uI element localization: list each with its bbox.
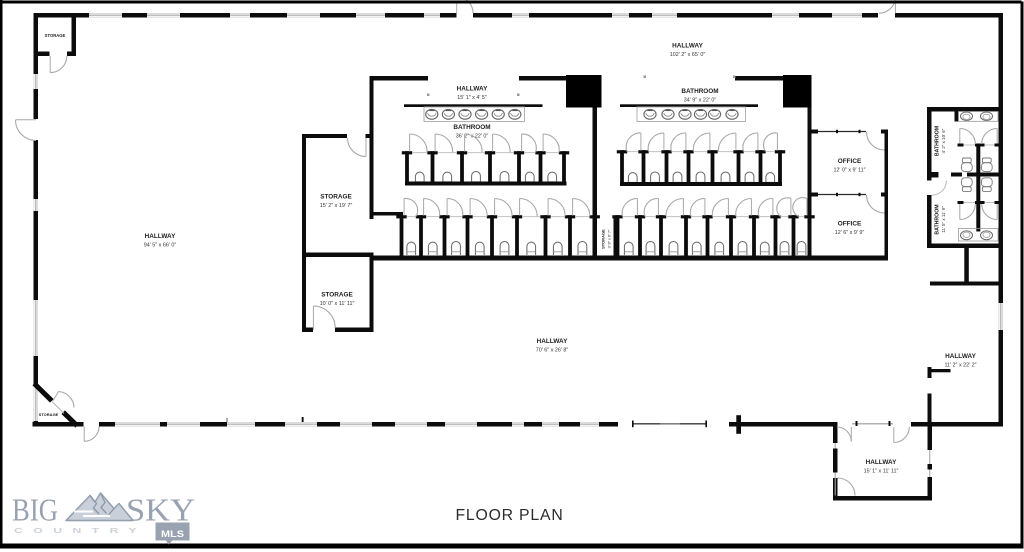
svg-text:94′ 5″ x 66′ 0″: 94′ 5″ x 66′ 0″: [144, 243, 177, 249]
svg-text:36′ 2″ x 22′ 0″: 36′ 2″ x 22′ 0″: [456, 134, 489, 140]
svg-text:STORAGE: STORAGE: [321, 292, 353, 299]
svg-text:10′ 0″ x 11′ 11″: 10′ 0″ x 11′ 11″: [320, 301, 355, 307]
svg-text:HALLWAY: HALLWAY: [866, 459, 897, 466]
svg-text:15′ 1″ x 11′ 11″: 15′ 1″ x 11′ 11″: [864, 469, 899, 475]
svg-text:11′ 2″ x 22′ 2″: 11′ 2″ x 22′ 2″: [944, 363, 976, 369]
svg-text:3′ 8″ x 6′ 7″: 3′ 8″ x 6′ 7″: [608, 229, 612, 248]
svg-text:HALLWAY: HALLWAY: [537, 338, 568, 345]
svg-text:BATHROOM: BATHROOM: [935, 204, 941, 234]
svg-text:HALLWAY: HALLWAY: [145, 233, 176, 240]
svg-text:FLOOR PLAN: FLOOR PLAN: [455, 507, 563, 524]
svg-text:BATHROOM: BATHROOM: [453, 124, 490, 131]
svg-text:HALLWAY: HALLWAY: [457, 86, 488, 93]
svg-text:BIG: BIG: [12, 492, 58, 528]
svg-text:34′ 9″ x 22′ 0″: 34′ 9″ x 22′ 0″: [684, 98, 717, 104]
svg-text:OFFICE: OFFICE: [838, 221, 862, 228]
svg-text:HALLWAY: HALLWAY: [945, 353, 976, 360]
svg-text:4′ 2″ x 10′ 6″: 4′ 2″ x 10′ 6″: [941, 128, 946, 153]
svg-text:MLS: MLS: [161, 529, 184, 540]
svg-text:15′ 2″ x 19′ 7″: 15′ 2″ x 19′ 7″: [320, 203, 353, 209]
svg-text:102′ 2″ x 65′ 0″: 102′ 2″ x 65′ 0″: [670, 52, 706, 58]
svg-text:12′ 0″ x 9′ 11″: 12′ 0″ x 9′ 11″: [833, 168, 865, 174]
svg-text:12′ 6″ x 9′ 9″: 12′ 6″ x 9′ 9″: [835, 230, 865, 236]
svg-text:HALLWAY: HALLWAY: [672, 43, 703, 50]
svg-text:OFFICE: OFFICE: [838, 158, 862, 165]
svg-text:BATHROOM: BATHROOM: [681, 88, 718, 95]
svg-text:SKY: SKY: [126, 492, 195, 528]
svg-text:STORAGE: STORAGE: [45, 33, 66, 38]
svg-text:STORAGE: STORAGE: [320, 194, 352, 201]
svg-text:BATHROOM: BATHROOM: [935, 126, 941, 156]
svg-text:15′ 1″ x 4′ 5″: 15′ 1″ x 4′ 5″: [457, 95, 487, 101]
svg-text:70′ 6″ x 26′ 8″: 70′ 6″ x 26′ 8″: [536, 348, 569, 354]
svg-text:11′ 5″ x 11′ 9″: 11′ 5″ x 11′ 9″: [941, 206, 946, 233]
svg-text:STORAGE: STORAGE: [601, 229, 606, 249]
svg-text:COUNTRY: COUNTRY: [14, 528, 147, 535]
svg-text:STORAGE: STORAGE: [39, 412, 59, 417]
